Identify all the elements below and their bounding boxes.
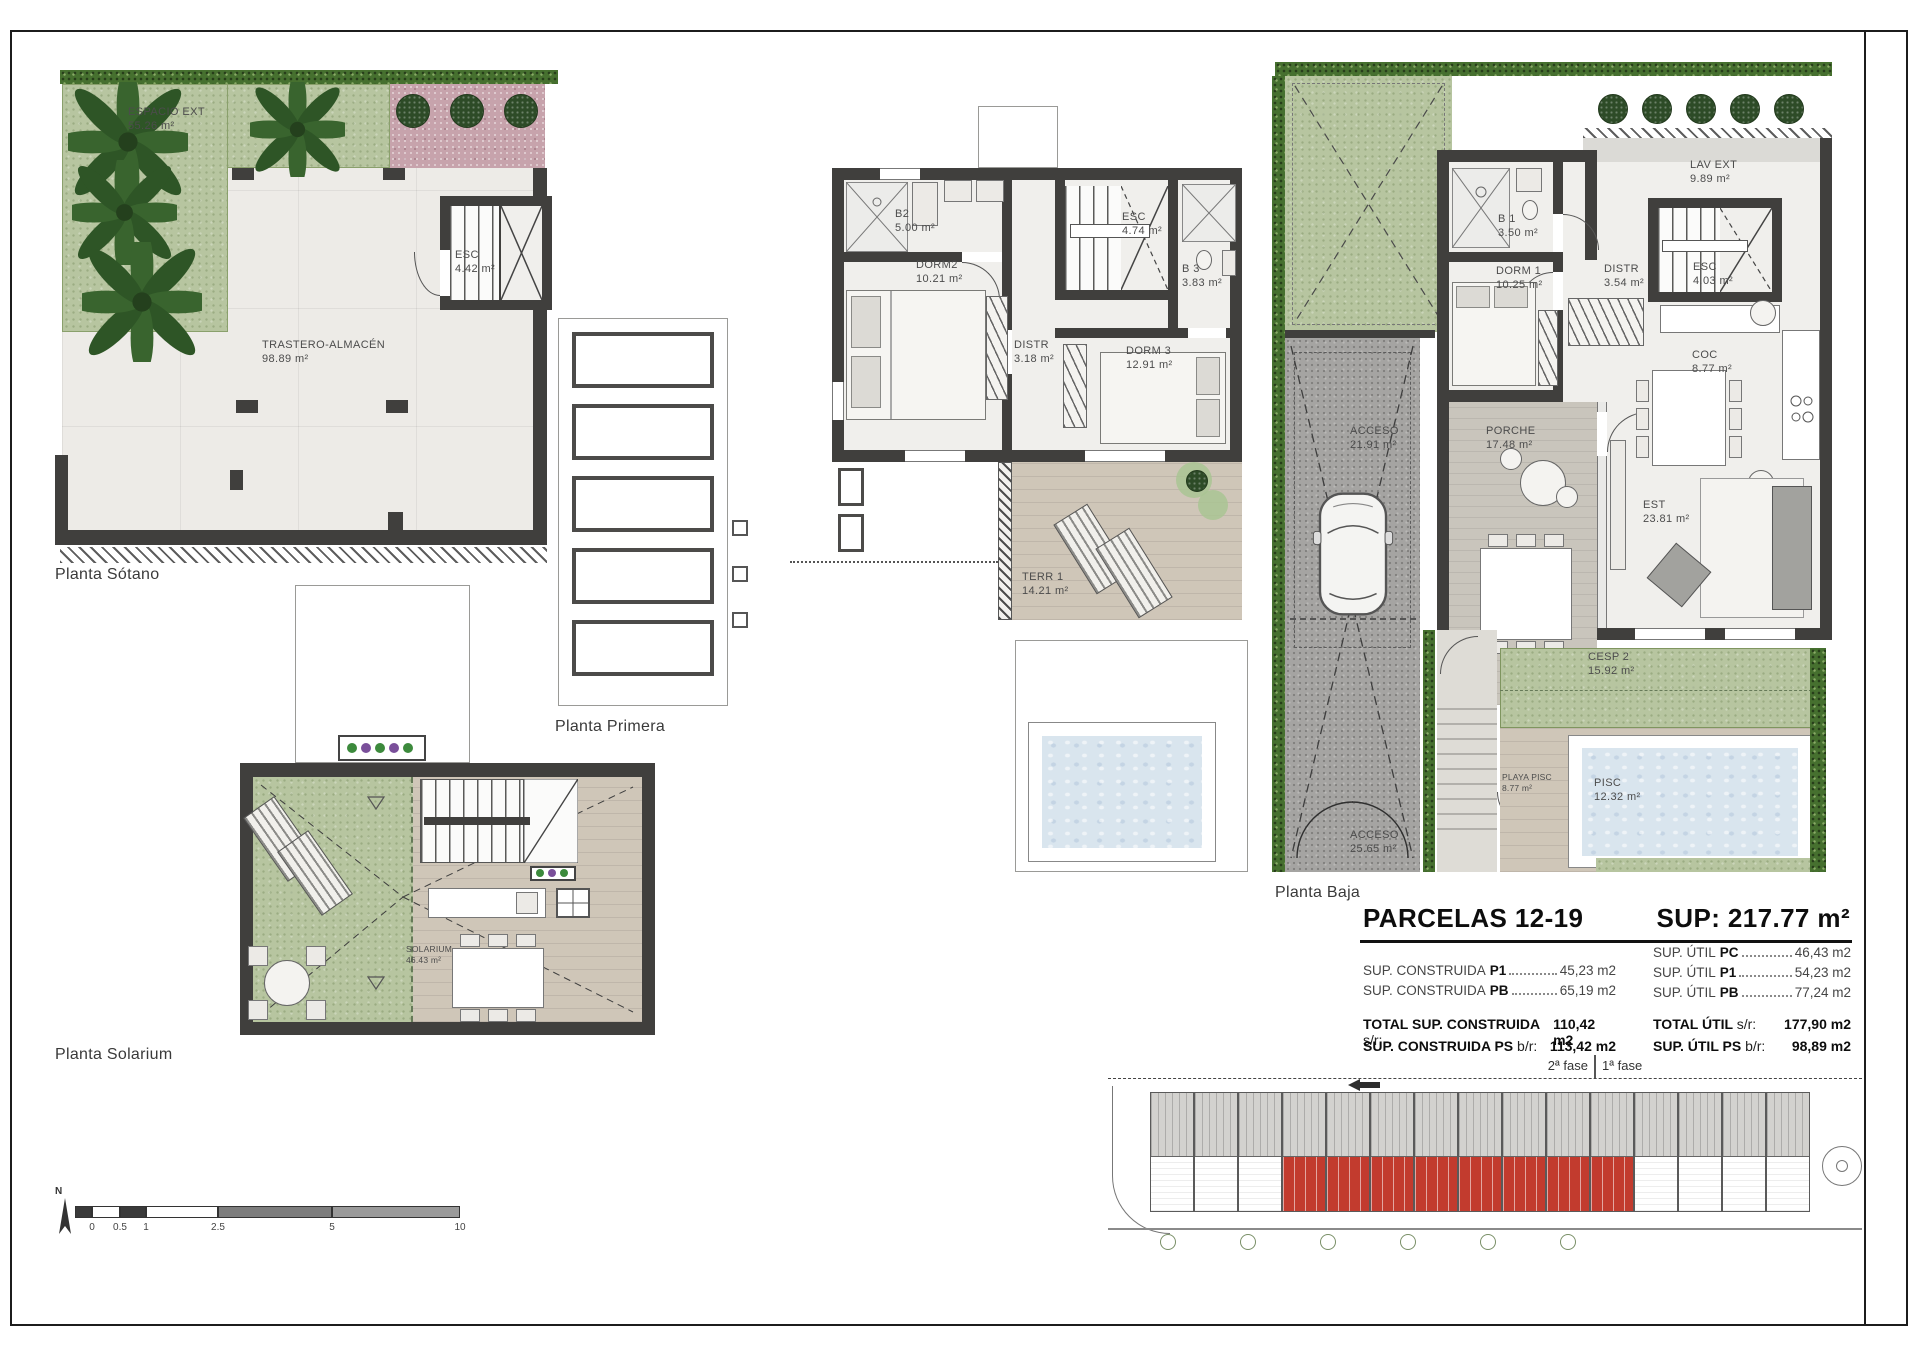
dining-table [1652,370,1726,466]
room-name: PLAYA PISC [1502,772,1552,783]
scale-segment [75,1206,92,1218]
room-name: B 1 [1498,212,1538,226]
wardrobe [1538,310,1558,386]
scale-segment [120,1206,146,1218]
window [880,168,920,180]
room-label-porche: PORCHE17.48 m² [1486,424,1535,453]
column [386,400,408,413]
site-units-row [1150,1092,1810,1212]
room-label-lav-ext: LAV EXT9.89 m² [1690,158,1737,187]
scale-segment [332,1206,460,1218]
room-area: 17.48 m² [1486,438,1535,452]
garden [1500,648,1822,728]
room-name: TERR 1 [1022,570,1069,584]
tree-icon [1730,94,1760,124]
wall [240,763,655,777]
wall [1449,252,1561,262]
wall [55,455,68,545]
site-arrow-icon [1348,1078,1382,1092]
chair [248,1000,268,1020]
summary-row: SUP. ÚTILPB77,24 m2 [1653,985,1851,1000]
site-unit-highlighted [1590,1092,1634,1212]
caption-planta-baja: Planta Baja [1275,884,1360,902]
total-label: SUP. ÚTIL PS [1653,1038,1741,1054]
room-name: ESC [455,248,495,262]
chair [1488,534,1508,547]
site-unit [1238,1092,1282,1212]
fase2-label: 2ª fase [1488,1058,1588,1073]
chair [1729,436,1742,458]
terrace-wall [998,462,1012,620]
skylight [572,620,714,676]
tree-icon [1598,94,1628,124]
skylight [572,332,714,388]
row-key: P1 [1720,965,1737,980]
room-name: PORCHE [1486,424,1535,438]
room-name: DISTR [1014,338,1054,352]
room-name: DORM 1 [1496,264,1543,278]
room-area: 25.65 m² [1350,842,1399,856]
dotted-leader [1742,955,1792,957]
door-gap [1188,328,1226,338]
room-name: TRASTERO-ALMACÉN [262,338,385,352]
site-unit-highlighted [1326,1092,1370,1212]
summary-title: PARCELAS 12-19 [1363,903,1583,934]
site-unit [1766,1092,1810,1212]
room-name: DORM 3 [1126,344,1173,358]
room-name: B 3 [1182,262,1222,276]
door-gap [1597,412,1607,456]
skylight [572,476,714,532]
hedge [1810,648,1826,872]
window [1085,450,1165,462]
chair [516,934,536,947]
bbq-icon [556,888,590,918]
pool-water [1042,736,1202,848]
room-label-b1: B 13.50 m² [1498,212,1538,241]
room-area: 12.32 m² [1594,790,1641,804]
room-name: ACCESO [1350,424,1399,438]
row-label: SUP. ÚTIL [1653,985,1716,1000]
pillow [1456,286,1490,308]
pillow [1196,357,1220,395]
summary-row: SUP. ÚTILP154,23 m2 [1653,965,1851,980]
room-area: 23.81 m² [1643,512,1690,526]
site-unit-highlighted [1458,1092,1502,1212]
site-tree-icon [1320,1234,1336,1250]
bush-icon [450,94,484,128]
room-area: 14.21 m² [1022,584,1069,598]
dashed-separator [1108,1078,1862,1079]
room-area: 46.43 m² [406,955,452,966]
room-area: 5.00 m² [895,221,935,235]
room-label-distr: DISTR3.18 m² [1014,338,1054,367]
planter [838,468,864,506]
room-area: 3.18 m² [1014,352,1054,366]
solar-panel-dots [340,737,424,759]
sink [1516,168,1542,192]
window [1635,628,1705,640]
site-tree-icon [1480,1234,1496,1250]
section-hatch [60,547,547,563]
stair-rail [424,817,530,825]
dotted-leader [1742,995,1792,997]
garden-sightlines [1285,76,1452,332]
chair [306,1000,326,1020]
wall [240,1022,655,1035]
room-label-distr: DISTR3.54 m² [1604,262,1644,291]
stair-cross [501,206,542,300]
wall [383,168,405,180]
plant [1198,490,1228,520]
wall [1055,176,1065,290]
palm-tree-icon [250,82,345,177]
summary-row: SUP. CONSTRUIDAPB65,19 m2 [1363,983,1616,998]
total-value: 98,89 m2 [1792,1038,1851,1054]
room-area: 8.77 m² [1502,783,1552,794]
round-table [264,960,310,1006]
room-label-playa-pisc: PLAYA PISC8.77 m² [1502,772,1552,794]
wall [55,530,547,545]
hedge [1272,76,1285,872]
room-name: COC [1692,348,1732,362]
room-area: 4.74 m² [1122,224,1162,238]
chair [460,934,480,947]
chair [488,1009,508,1022]
door-gap [440,250,450,296]
scale-tick-label: 0.5 [113,1222,127,1233]
scale-tick-label: 0 [89,1222,95,1233]
scale-tick-label: 10 [454,1222,465,1233]
row-value: 45,23 m2 [1560,963,1616,978]
chair [1729,408,1742,430]
room-area: 3.50 m² [1498,226,1538,240]
site-unit [1150,1092,1194,1212]
dotted-leader [1739,975,1791,977]
room-label-dorm2: DORM210.21 m² [916,258,963,287]
sink [976,180,1004,202]
site-unit [1678,1092,1722,1212]
dotted-leader [1509,973,1556,975]
chair [1636,408,1649,430]
site-unit-highlighted [1502,1092,1546,1212]
scale-tick-label: 2.5 [211,1222,225,1233]
total-suffix: b/r: [1517,1038,1537,1054]
wardrobe [986,296,1008,400]
roof-outline [978,106,1058,168]
fase-divider [1594,1055,1596,1079]
room-area: 55.26 m² [128,119,205,133]
pergola-hatch [1583,128,1832,138]
site-tree-icon [1400,1234,1416,1250]
chair [1516,534,1536,547]
site-unit-highlighted [1546,1092,1590,1212]
chair [488,934,508,947]
vent-box [732,612,748,628]
plan-sheet: ESPACIO EXT55.26 m² TRASTERO-ALMACÉN98.8… [0,0,1920,1357]
row-key: PB [1490,983,1509,998]
site-unit-highlighted [1282,1092,1326,1212]
door-gap [1553,214,1563,252]
row-key: PC [1720,945,1739,960]
chair [1556,486,1578,508]
walkway-steps [1437,700,1497,830]
planter [838,514,864,552]
dotted-line [790,561,998,563]
side-table [1750,300,1776,326]
total-value: 113,42 m2 [1550,1038,1616,1054]
room-area: 10.25 m² [1496,278,1543,292]
room-name: SOLARIUM [406,944,452,955]
room-name: ESC [1693,260,1733,274]
row-key: P1 [1490,963,1507,978]
garden-strip [1596,858,1812,872]
wall [1055,290,1178,300]
room-label-esc: ESC4.74 m² [1122,210,1162,239]
total-value: 177,90 m2 [1784,1016,1851,1032]
chair [516,1009,536,1022]
shower-cross [1182,184,1236,242]
window [832,382,844,420]
chair [1544,534,1564,547]
row-label: SUP. ÚTIL [1653,945,1716,960]
site-tree-icon [1560,1234,1576,1250]
vent-box [732,566,748,582]
chair [1636,436,1649,458]
summary-sup-total: SUP: 217.77 m² [1630,903,1850,934]
room-area: 98.89 m² [262,352,385,366]
room-label-acceso-inf: ACCESO25.65 m² [1350,828,1399,857]
tv-unit [1610,440,1626,570]
tree-icon [1686,94,1716,124]
total-suffix: b/r: [1745,1038,1765,1054]
palm-tree-icon [82,242,202,362]
summary-row: SUP. CONSTRUIDAP145,23 m2 [1363,963,1616,978]
site-unit [1722,1092,1766,1212]
window [1725,628,1795,640]
wall [1437,150,1597,162]
caption-planta-solarium: Planta Solarium [55,1046,172,1064]
site-tree-icon [1240,1234,1256,1250]
site-unit-highlighted [1370,1092,1414,1212]
stair-rail [1662,240,1748,252]
scale-tick-label: 1 [143,1222,149,1233]
room-area: 10.21 m² [916,272,963,286]
stair-cut [524,779,578,863]
dotted-leader [1512,993,1557,995]
room-area: 8.77 m² [1692,362,1732,376]
bush-icon [504,94,538,128]
room-label-dorm3: DORM 312.91 m² [1126,344,1173,373]
sink [944,180,972,202]
room-name: LAV EXT [1690,158,1737,172]
sheet-margin-line [1864,30,1866,1326]
room-label-esc: ESC4.03 m² [1693,260,1733,289]
sink [1222,250,1236,276]
summary-row: SUP. ÚTILPC46,43 m2 [1653,945,1851,960]
door-gap [1553,272,1563,310]
site-tree-icon [1160,1234,1176,1250]
room-area: 3.54 m² [1604,276,1644,290]
room-name: PISC [1594,776,1641,790]
room-label-terr1: TERR 114.21 m² [1022,570,1069,599]
row-key: PB [1720,985,1739,1000]
row-label: SUP. ÚTIL [1653,965,1716,980]
room-area: 3.83 m² [1182,276,1222,290]
chair [1729,380,1742,402]
plant [1186,470,1208,492]
chair [460,1009,480,1022]
door-gap [962,252,1002,262]
dining-table [452,948,544,1008]
summary-total-row: SUP. ÚTIL PS b/r: 98,89 m2 [1653,1038,1851,1054]
wall [642,763,655,1035]
hedge [1275,62,1832,76]
row-label: SUP. CONSTRUIDA [1363,983,1486,998]
fase1-label: 1ª fase [1602,1058,1702,1073]
hedge [1423,630,1435,872]
room-label-trastero: TRASTERO-ALMACÉN98.89 m² [262,338,385,367]
room-label-cesp2: CESP 215.92 m² [1588,650,1635,679]
site-unit [1194,1092,1238,1212]
row-value: 65,19 m2 [1560,983,1616,998]
room-label-esc: ESC4.42 m² [455,248,495,277]
room-label-b2: B25.00 m² [895,207,935,236]
skylight [572,548,714,604]
hob-icon [1788,392,1814,426]
room-name: DORM2 [916,258,963,272]
garden-dashed [1500,690,1822,691]
wall [1820,138,1832,640]
chair [1636,380,1649,402]
caption-planta-primera: Planta Primera [555,718,665,736]
wall [232,168,254,180]
stair-treads [1065,186,1121,290]
room-label-acceso-sup: ACCESO21.91 m² [1350,424,1399,453]
caption-planta-sotano: Planta Sótano [55,566,159,584]
tree-icon [1774,94,1804,124]
total-suffix: s/r: [1737,1016,1756,1032]
closet [1568,298,1644,346]
summary-total-row: TOTAL ÚTIL s/r: 177,90 m2 [1653,1016,1851,1032]
room-name: ACCESO [1350,828,1399,842]
total-label: TOTAL SUP. CONSTRUIDA [1363,1016,1540,1032]
room-name: EST [1643,498,1690,512]
blanket-line [890,291,892,419]
site-roundabout-center [1836,1160,1848,1172]
wall [240,763,253,1035]
room-name: ESPACIO EXT [128,105,205,119]
total-label: TOTAL ÚTIL [1653,1016,1733,1032]
scale-segment [218,1206,332,1218]
room-name: ESC [1122,210,1162,224]
row-value: 54,23 m2 [1795,965,1851,980]
chair [306,946,326,966]
row-label: SUP. CONSTRUIDA [1363,963,1486,978]
wall [832,450,1242,462]
site-unit-highlighted [1414,1092,1458,1212]
skylight [572,404,714,460]
pillow [851,296,881,348]
sofa [1772,486,1812,610]
column [388,512,403,530]
summary-rule [1360,940,1852,943]
row-value: 77,24 m2 [1795,985,1851,1000]
pillow [1196,399,1220,437]
solar-panel-dots [532,868,574,879]
room-name: B2 [895,207,935,221]
row-value: 46,43 m2 [1795,945,1851,960]
room-label-pisc: PISC12.32 m² [1594,776,1641,805]
column [236,400,258,413]
north-arrow-icon [58,1198,72,1238]
room-label-b3: B 33.83 m² [1182,262,1222,291]
dining-table [1480,548,1572,640]
column [230,470,243,490]
wall [1437,390,1563,402]
tree-icon [1642,94,1672,124]
car-icon [1310,488,1396,620]
room-name: CESP 2 [1588,650,1635,664]
site-unit [1634,1092,1678,1212]
room-area: 9.89 m² [1690,172,1737,186]
room-label-est: EST23.81 m² [1643,498,1690,527]
scale-segment [146,1206,218,1218]
pergola-beam [1285,330,1435,338]
room-area: 15.92 m² [1588,664,1635,678]
total-label: SUP. CONSTRUIDA PS [1363,1038,1513,1054]
bush-icon [396,94,430,128]
room-area: 4.42 m² [455,262,495,276]
vent-box [732,520,748,536]
room-label-coc: COC8.77 m² [1692,348,1732,377]
room-area: 12.91 m² [1126,358,1173,372]
north-label: N [55,1186,62,1197]
summary-total-row: SUP. CONSTRUIDA PS b/r: 113,42 m2 [1363,1038,1616,1054]
site-road-line [1108,1228,1862,1230]
room-area: 21.91 m² [1350,438,1399,452]
closet [1063,344,1087,428]
chair [248,946,268,966]
scale-tick-label: 5 [329,1222,335,1233]
sink [516,892,538,914]
pillow [851,356,881,408]
wall [1168,176,1178,338]
scale-segment [92,1206,120,1218]
room-label-solarium: SOLARIUM46.43 m² [406,944,452,966]
room-label-espacio-ext: ESPACIO EXT55.26 m² [128,105,205,134]
room-name: DISTR [1604,262,1644,276]
room-label-dorm1: DORM 110.25 m² [1496,264,1543,293]
window [905,450,965,462]
room-area: 4.03 m² [1693,274,1733,288]
